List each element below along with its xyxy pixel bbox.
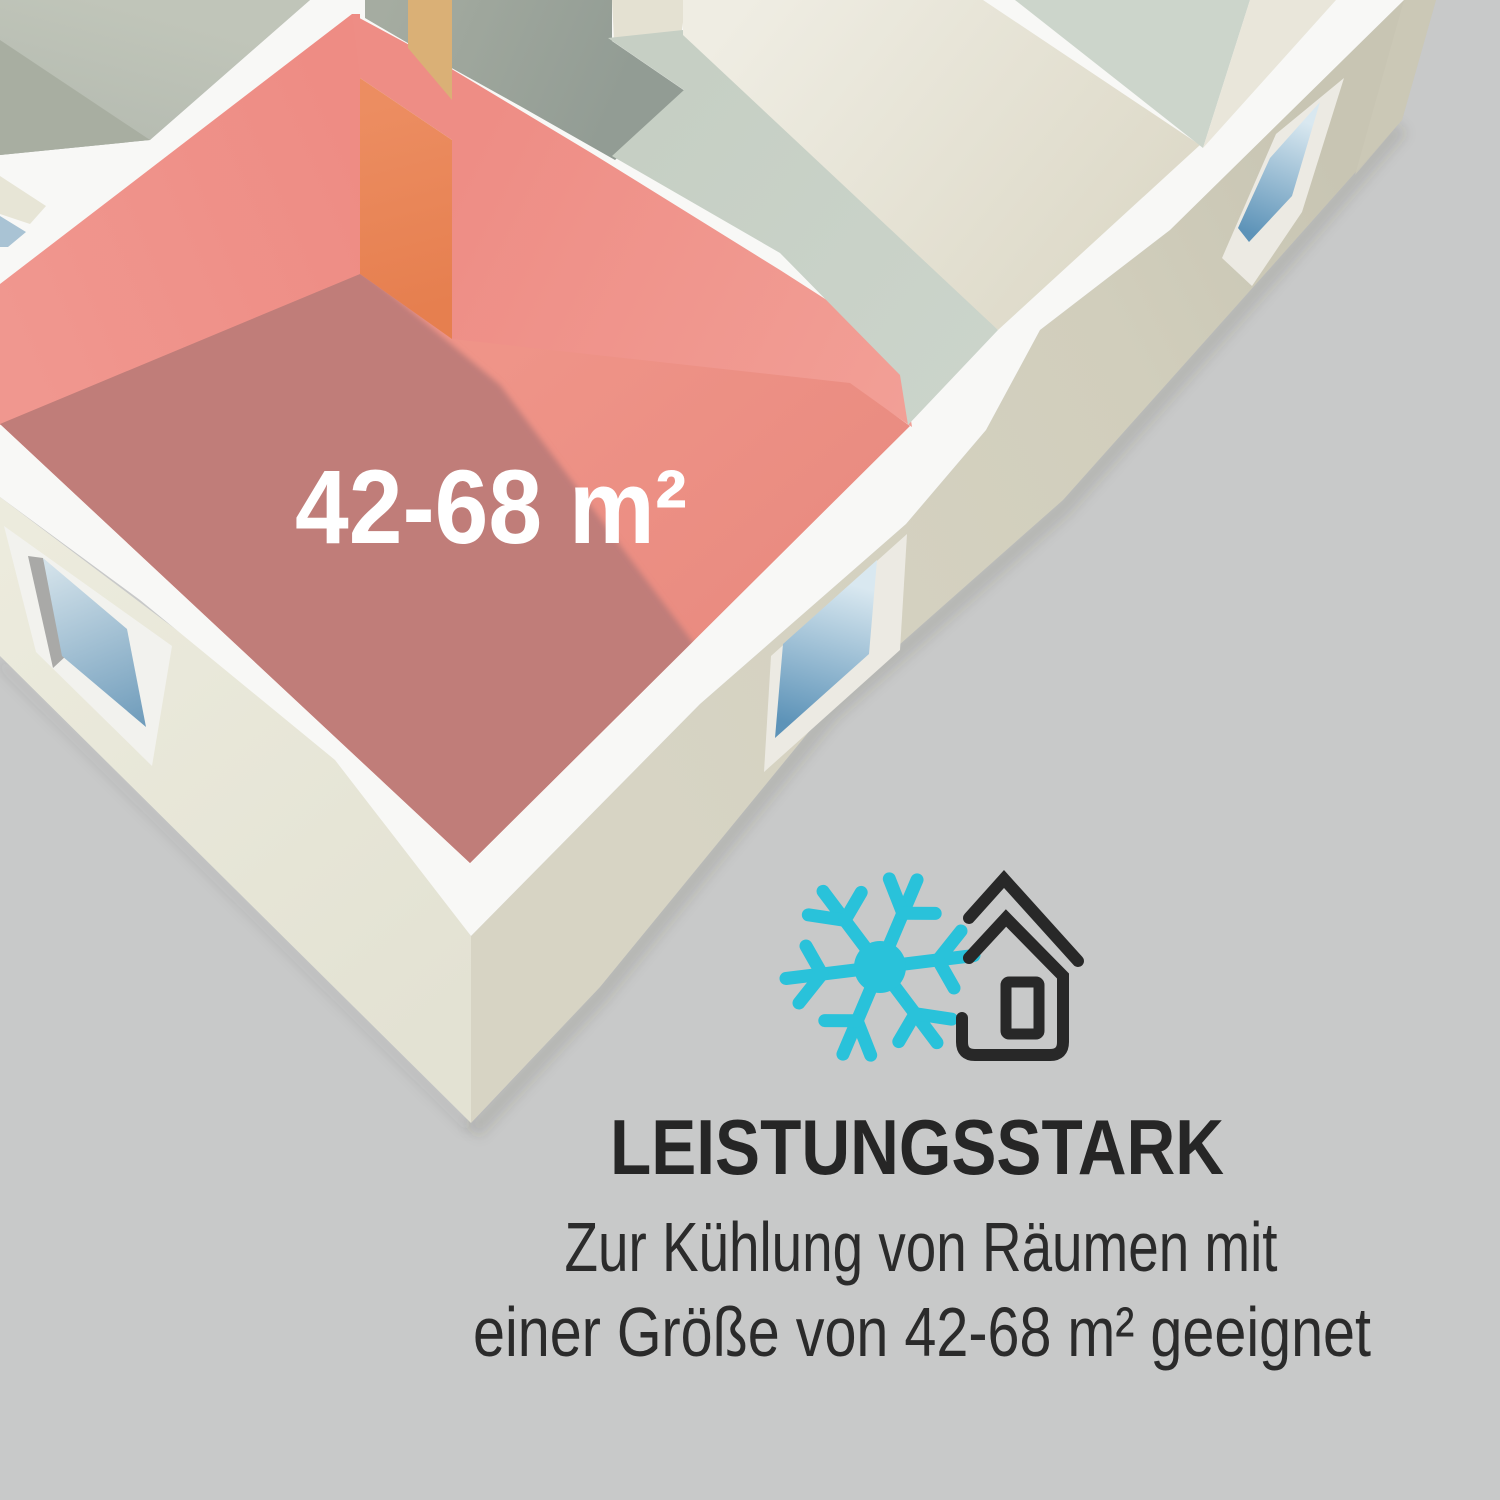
svg-text:42-68 m²: 42-68 m² [295, 449, 687, 566]
svg-text:Zur Kühlung von Räumen mit: Zur Kühlung von Räumen mit [565, 1208, 1278, 1286]
svg-text:einer Größe von 42-68 m² geeig: einer Größe von 42-68 m² geeignet [473, 1293, 1371, 1371]
svg-text:LEISTUNGSSTARK: LEISTUNGSSTARK [610, 1103, 1224, 1191]
